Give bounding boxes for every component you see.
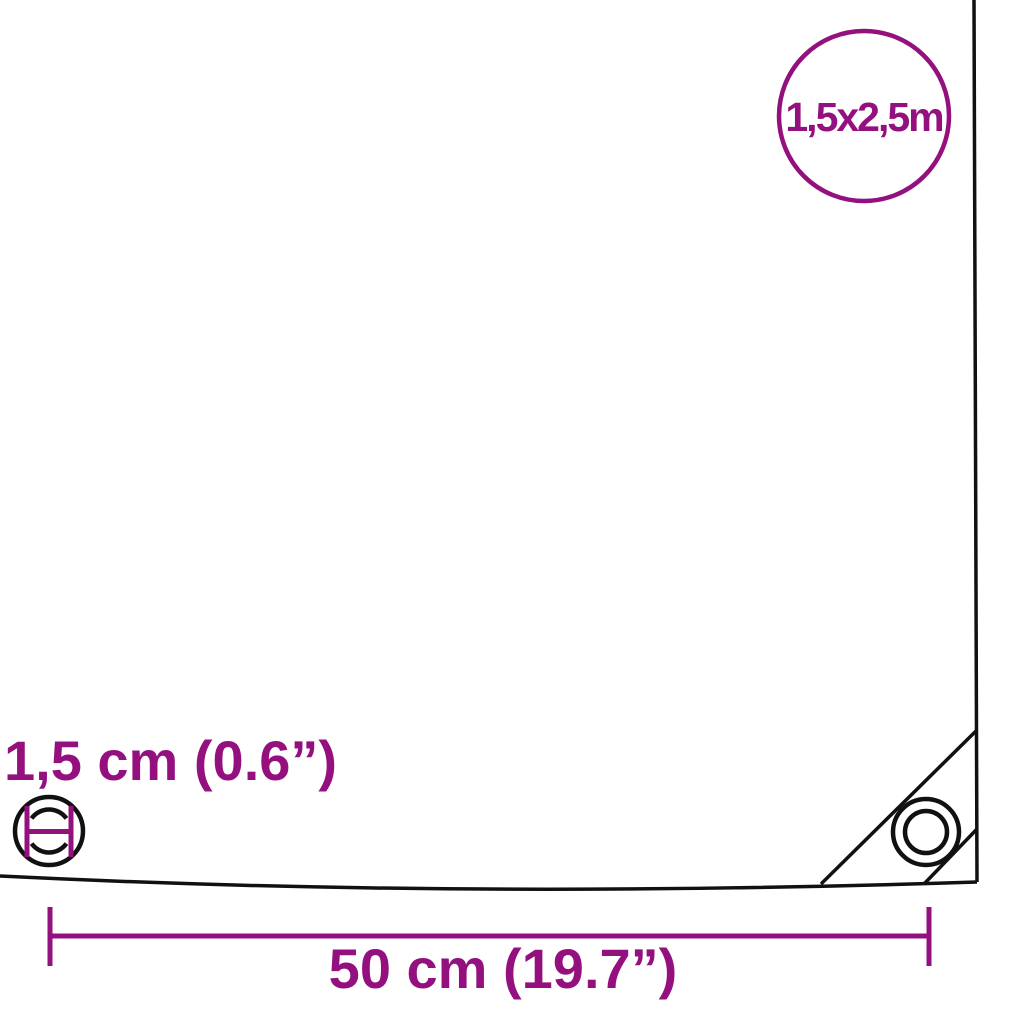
grommet-hole <box>905 811 947 853</box>
diagram-canvas: 1,5x2,5m 1,5 cm (0.6”) 50 cm (19.7”) <box>0 0 1024 1024</box>
eyelet-hole-bottom-arc <box>32 844 67 853</box>
eyelet-hole-top-arc <box>32 810 67 819</box>
eyelet-icon <box>15 797 83 865</box>
eyelet-size-label: 1,5 cm (0.6”) <box>4 729 337 792</box>
tarp-right-edge <box>974 0 977 882</box>
tarpaulin-dimension-diagram: 1,5x2,5m 1,5 cm (0.6”) 50 cm (19.7”) <box>0 0 1024 1024</box>
edge-dimension: 50 cm (19.7”) <box>50 907 929 1000</box>
corner-fold-line <box>821 731 976 884</box>
size-badge-label: 1,5x2,5m <box>785 94 942 140</box>
grommet-icon <box>893 799 959 865</box>
tarp-bottom-edge <box>0 876 977 889</box>
dimension-label: 50 cm (19.7”) <box>329 937 678 1000</box>
size-badge: 1,5x2,5m <box>779 31 949 201</box>
